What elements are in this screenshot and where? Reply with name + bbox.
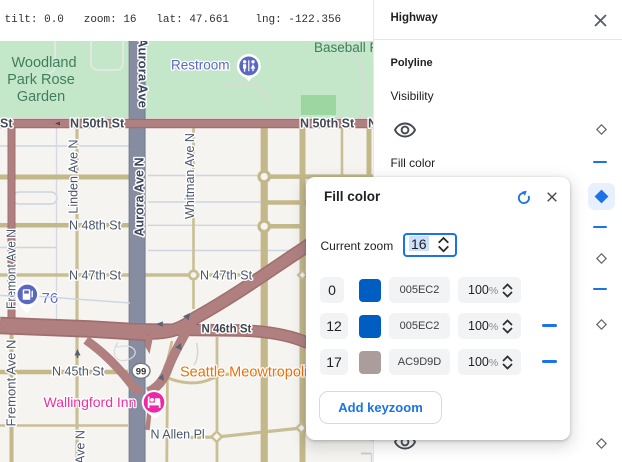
svg-text:Fremont Ave N: Fremont Ave N: [5, 340, 19, 427]
svg-text:Aurora Ave N: Aurora Ave N: [132, 158, 146, 237]
svg-text:Aurora Ave: Aurora Ave: [136, 41, 150, 108]
svg-text:N 46th St: N 46th St: [202, 324, 252, 336]
svg-text:N 48th St: N 48th St: [69, 219, 122, 233]
svg-text:N 50th St: N 50th St: [300, 117, 355, 131]
svg-text:N 47th St: N 47th St: [200, 269, 253, 283]
svg-text:Whitman Ave N: Whitman Ave N: [183, 133, 197, 219]
svg-text:Park Rose: Park Rose: [7, 72, 75, 88]
svg-text:Linden Ave N: Linden Ave N: [67, 139, 81, 213]
svg-text:N Allen Pl: N Allen Pl: [151, 428, 205, 442]
svg-text:N 45th St: N 45th St: [52, 365, 105, 379]
svg-text:N 47th St: N 47th St: [69, 269, 122, 283]
svg-text:Wallingford Inn: Wallingford Inn: [44, 394, 137, 410]
svg-text:Woodland: Woodland: [11, 55, 76, 71]
svg-text:Restroom: Restroom: [171, 58, 230, 73]
svg-text:76: 76: [42, 290, 59, 307]
svg-text:Baseball Fie: Baseball Fie: [314, 41, 373, 55]
svg-text:99: 99: [136, 366, 147, 377]
svg-text:Ave N: Ave N: [74, 430, 88, 462]
svg-text:St: St: [0, 117, 13, 131]
svg-text:Seattle Meowtropolis: Seattle Meowtropolis: [180, 365, 315, 381]
svg-text:N 50th St: N 50th St: [70, 117, 125, 131]
svg-text:Garden: Garden: [17, 89, 65, 105]
